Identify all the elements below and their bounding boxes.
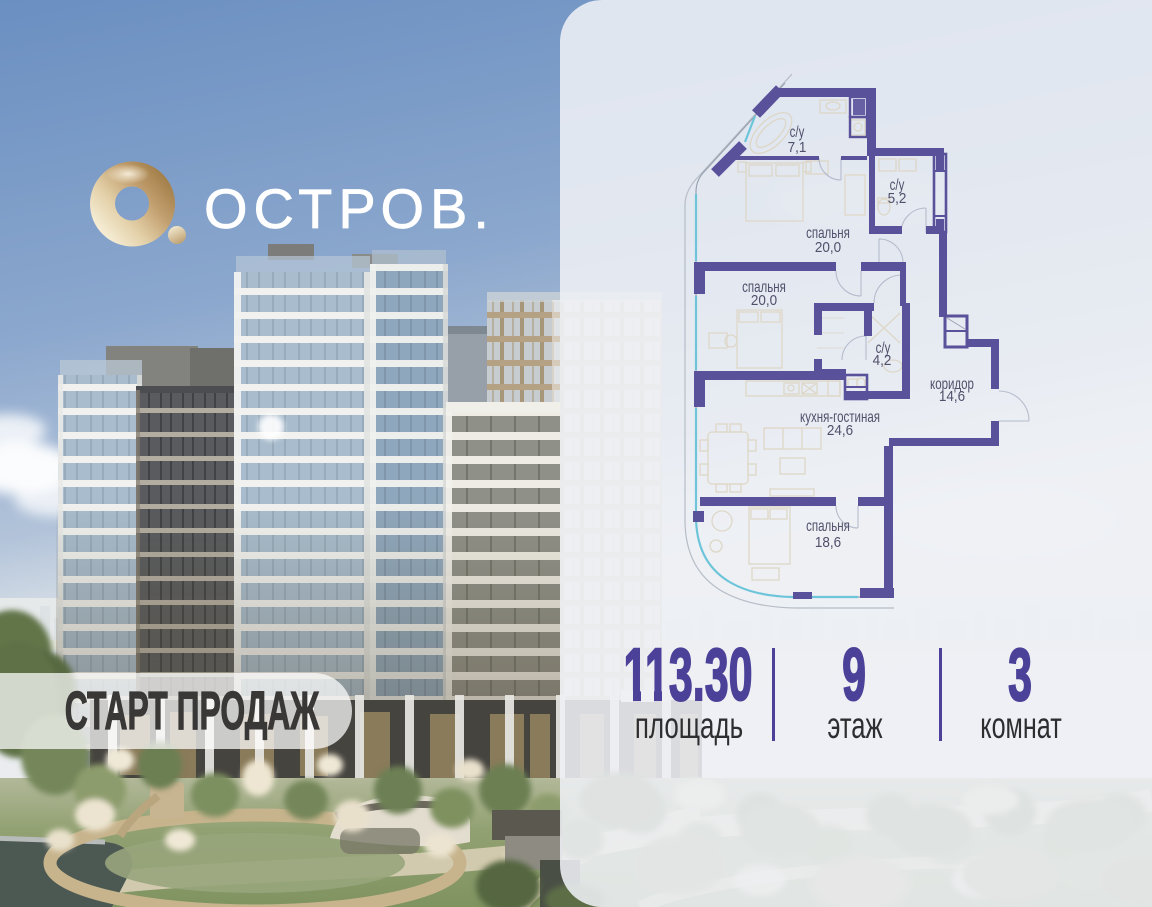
svg-text:20,0: 20,0 xyxy=(815,239,841,256)
svg-text:ОСТРОВ.: ОСТРОВ. xyxy=(204,177,495,240)
svg-text:7,1: 7,1 xyxy=(788,139,807,156)
svg-text:24,6: 24,6 xyxy=(827,422,853,439)
svg-text:с/у: с/у xyxy=(790,123,805,140)
svg-text:14,6: 14,6 xyxy=(939,388,965,405)
svg-text:5,2: 5,2 xyxy=(888,190,907,207)
svg-text:20,0: 20,0 xyxy=(751,292,777,309)
svg-text:4,2: 4,2 xyxy=(873,352,892,369)
svg-text:спальня: спальня xyxy=(806,516,850,534)
svg-text:18,6: 18,6 xyxy=(815,534,841,551)
